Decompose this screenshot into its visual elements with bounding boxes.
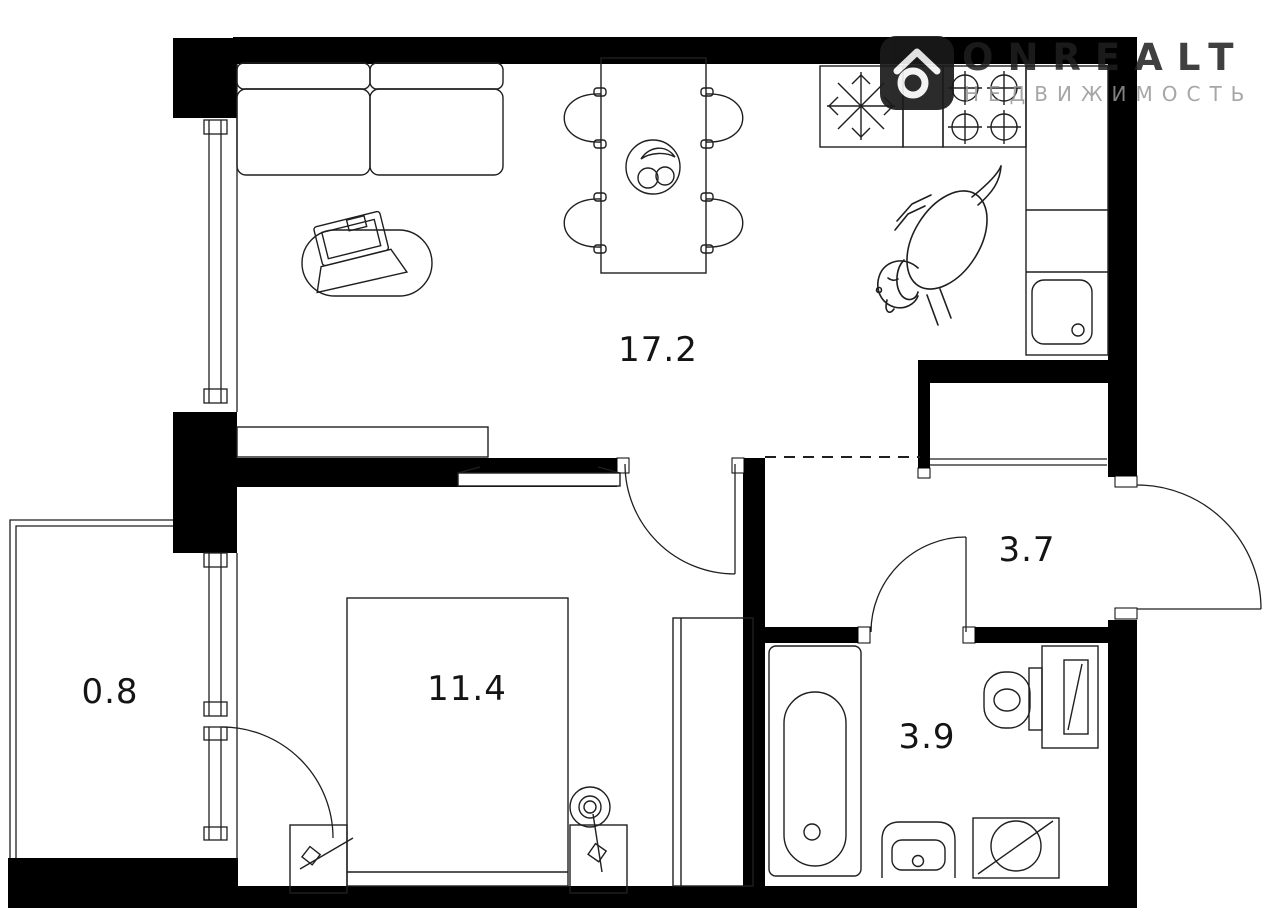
balcony-door [204,727,333,840]
wardrobe [673,618,753,886]
jamb [858,627,870,643]
wall-top [233,37,1137,64]
wall-left-pillar [173,412,237,553]
bedroom-door [625,464,735,574]
living-area [237,58,743,457]
wall-top-left-block [173,38,237,118]
wall-right-lower [1108,620,1137,890]
washing-machine-icon [973,818,1059,878]
balcony-door-arc [222,727,333,838]
wall-bottom [236,886,1137,908]
bathroom-door [871,537,966,632]
entrance-door [1137,485,1261,609]
kitchen-sink [1032,280,1092,344]
jamb [918,468,930,478]
floorplan-drawing [0,0,1272,910]
table-lamp-icon [570,787,610,872]
sofa [237,63,503,175]
bedroom-furniture [290,598,753,893]
wall-bathroom-top-left [757,627,858,643]
nightstand-right [570,825,627,893]
stove-burners-icon [948,71,1021,144]
snowflake-icon [827,72,895,140]
kitchen [820,66,1108,355]
bathtub [769,646,861,876]
room-label-living-kitchen: 17.2 [618,330,698,370]
wall-balcony-bottom [8,858,238,908]
tv-console [237,427,488,457]
closet-front [930,459,1107,465]
dining-table [601,58,706,273]
bed [347,598,568,886]
door-jambs [617,458,1137,643]
bathroom-fixtures [769,646,1098,878]
floorplan-image: 17.2 11.4 3.7 3.9 0.8 ONREALT НЕДВИЖИМОС… [0,0,1272,910]
kitchen-cabinet [903,66,943,147]
toilet [984,668,1042,730]
jamb [1115,608,1137,619]
bathroom-cabinet [1042,646,1098,748]
jamb [617,458,629,473]
table-lamp-icon [300,838,353,869]
wall-bathroom-top-right [975,627,1108,643]
nightstand-left [290,825,347,893]
wall-right-upper [1108,37,1137,477]
wall-bedroom-bathroom [743,458,765,888]
wall-closet-top [918,360,1108,383]
bathroom-sink [882,822,955,878]
jamb [1115,476,1137,487]
jamb [732,458,744,473]
laptop-icon [302,208,407,294]
room-label-bedroom: 11.4 [427,669,507,709]
dog-illustration [877,166,1004,325]
room-label-hallway: 3.7 [998,530,1055,570]
room-label-balcony: 0.8 [81,672,138,712]
room-label-bathroom: 3.9 [898,717,955,757]
doors [625,464,1261,632]
jamb [963,627,975,643]
wall-closet-stub [918,383,930,468]
banana-icon [641,148,675,159]
